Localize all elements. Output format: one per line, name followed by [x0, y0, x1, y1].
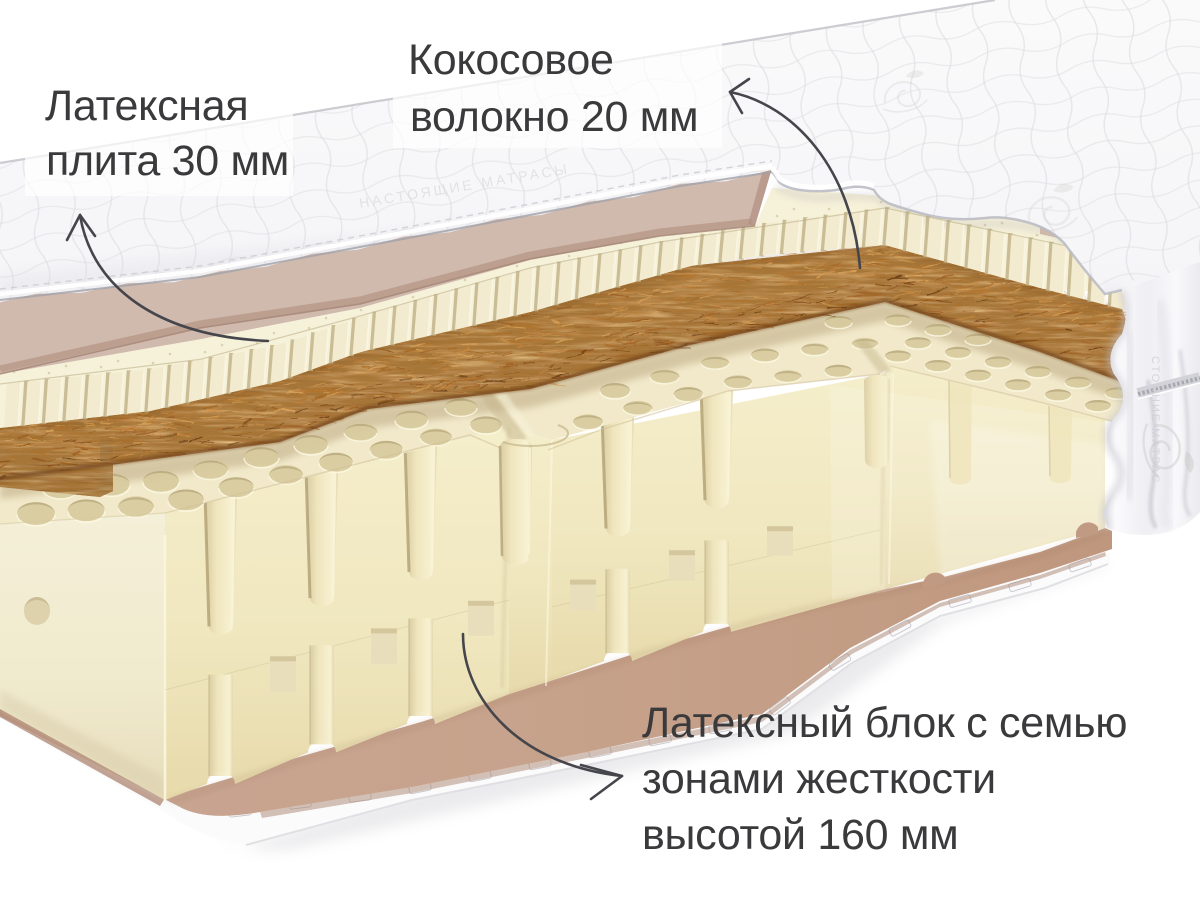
svg-text:Кокосовое: Кокосовое: [408, 36, 614, 84]
svg-text:волокно 20 мм: волокно 20 мм: [410, 93, 698, 141]
svg-text:плита 30 мм: плита 30 мм: [46, 137, 289, 185]
svg-text:Латексный блок с семью: Латексный блок с семью: [642, 699, 1127, 747]
svg-text:высотой 160 мм: высотой 160 мм: [642, 811, 958, 859]
svg-text:Латексная: Латексная: [45, 82, 248, 130]
svg-text:зонами жесткости: зонами жесткости: [642, 755, 996, 803]
